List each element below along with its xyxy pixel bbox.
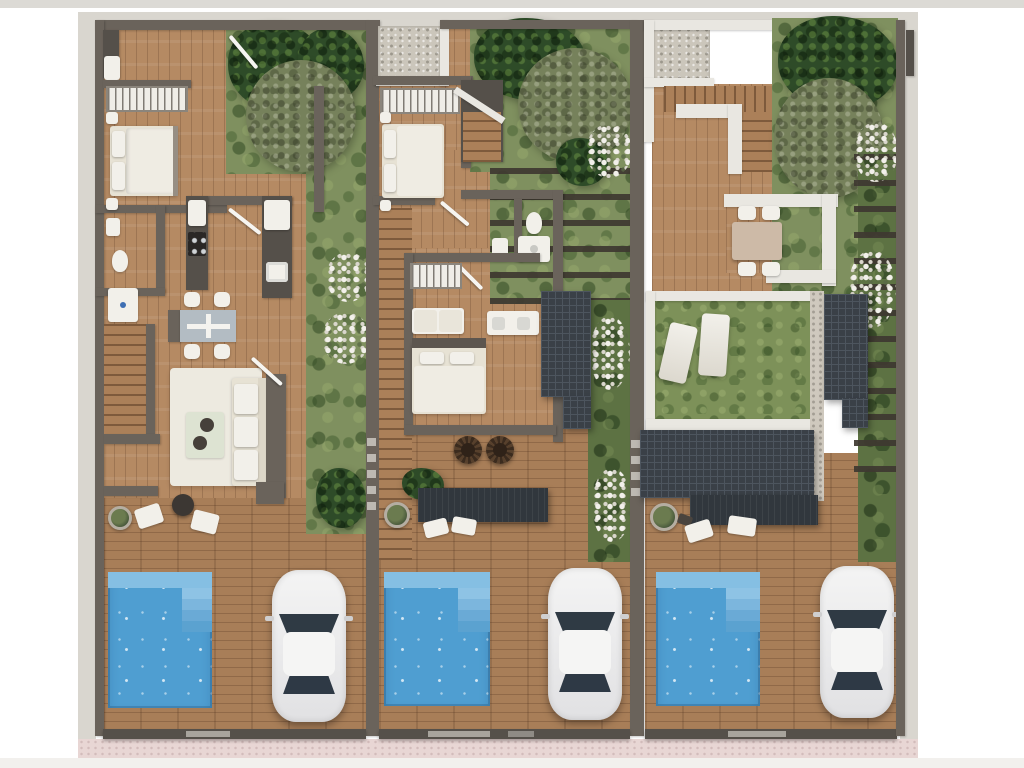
divider-wall-unit2-unit3 <box>630 20 644 736</box>
unit2-bed1-duvet <box>397 126 442 196</box>
unit1-sofa <box>232 378 268 486</box>
unit2-papasan-1-cushion <box>461 443 475 457</box>
unit1-bush <box>316 468 366 528</box>
unit2-flower-bush-a <box>586 124 632 178</box>
unit3-dining-chair-2 <box>762 206 780 220</box>
unit2-wall-bed1-top <box>373 76 473 85</box>
unit2-car-roof <box>559 630 611 674</box>
unit2-bench-cushion-1 <box>414 310 437 332</box>
unit1-bath-sink <box>106 218 120 236</box>
unit2-vanity-sink-2 <box>517 317 530 330</box>
unit1-flower-bush-a <box>326 252 370 302</box>
unit3-lawn-parapet-left <box>646 291 655 433</box>
unit1-wall-top <box>95 20 368 30</box>
unit2-pool-step-4 <box>458 621 490 632</box>
unit2-nightstand-1 <box>380 112 391 123</box>
unit3-sun-lounger-2 <box>698 313 730 377</box>
unit1-kitchen-counter-left <box>186 196 208 290</box>
unit1-fence-posts <box>367 434 376 510</box>
unit2-bed2-duvet <box>414 366 484 412</box>
unit1-nightstand-2 <box>106 198 118 210</box>
unit1-dining-chair-2 <box>214 292 230 307</box>
unit1-dining-chair-4 <box>214 344 230 359</box>
unit2-flower-bush-c <box>592 468 632 542</box>
unit1-car-rear-window <box>282 676 336 694</box>
unit2-pool-shelf <box>384 572 490 588</box>
unit1-gate-latch <box>186 731 230 737</box>
unit3-gate-latch <box>728 731 786 737</box>
unit1-stair-wall <box>146 324 155 436</box>
bottom-edge-strip <box>0 758 1024 768</box>
unit3-pool <box>656 572 760 706</box>
unit2-papasan-2-cushion <box>493 443 507 457</box>
unit1-sofa-cushion-3 <box>234 450 258 480</box>
unit1-flower-bush-b <box>322 312 370 364</box>
unit3-car-mirror-left <box>813 612 822 617</box>
unit3-roof-panel-right-step <box>842 398 868 428</box>
unit2-pool-step-3 <box>458 610 490 621</box>
unit3-pool-shelf <box>656 572 760 588</box>
unit2-bed1-pillow-1 <box>384 130 396 158</box>
unit1-olive-tree <box>246 60 356 172</box>
unit2-gravel-patch <box>378 26 442 80</box>
unit2-shower-drain <box>530 245 538 253</box>
unit1-pool-step-4 <box>182 621 212 632</box>
unit1-car-mirror-right <box>344 616 353 621</box>
unit1-pool <box>108 572 212 708</box>
unit1-toilet <box>112 250 128 272</box>
unit1-staircase <box>104 324 146 436</box>
unit2-gate-latch-2 <box>508 731 534 737</box>
unit1-car-roof <box>283 632 335 676</box>
frame-dark-tick <box>906 30 914 76</box>
top-edge-strip <box>0 0 1024 8</box>
unit1-stove <box>188 232 206 256</box>
unit2-papasan-chair-1 <box>454 436 482 464</box>
unit2-bench <box>412 308 464 334</box>
unit3-floor-cushion-2 <box>727 515 757 537</box>
unit1-dining-table-bar-h <box>187 324 230 329</box>
unit1-bed-pillow-1 <box>112 131 125 157</box>
unit1-nightstand-1 <box>106 112 118 124</box>
unit2-driveway-gate <box>379 729 630 739</box>
unit3-car-roof <box>831 628 883 672</box>
unit3-wall-top-light <box>644 20 780 30</box>
unit2-wardrobe-2 <box>410 263 462 289</box>
unit1-coffee-table-1 <box>200 418 214 432</box>
unit1-pool-step-1 <box>182 588 212 599</box>
unit1-island-top <box>264 200 290 230</box>
unit1-patio-table <box>172 494 194 516</box>
unit2-vanity <box>487 311 539 335</box>
unit1-kitchen-sink <box>266 262 288 282</box>
unit2-louver-roof-step <box>563 397 591 429</box>
unit1-sofa-cushion-1 <box>234 384 258 414</box>
unit1-pool-step-2 <box>182 599 212 610</box>
unit1-wall-stub-2 <box>104 486 158 496</box>
unit1-wall-bedroom-right <box>314 86 324 212</box>
unit1-entry-sink <box>104 56 120 80</box>
unit1-dining-rug <box>180 310 236 342</box>
unit1-dining-chair-3 <box>184 344 200 359</box>
divider-wall-unit1-unit2 <box>366 20 380 736</box>
unit2-bed-1 <box>382 124 444 198</box>
unit3-driveway-gate <box>645 729 897 739</box>
unit3-wall-right <box>896 20 905 736</box>
unit2-pool <box>384 572 490 706</box>
unit2-car <box>548 568 622 720</box>
unit2-car-mirror-left <box>541 614 550 619</box>
unit1-bed-duvet <box>126 128 174 194</box>
unit2-wall-bed2-bottom <box>404 425 556 435</box>
unit1-car-mirror-left <box>265 616 274 621</box>
unit1-driveway-gate <box>103 729 366 739</box>
unit1-bed-footboard <box>173 126 178 196</box>
unit1-planter <box>108 506 132 530</box>
unit2-nightstand-2 <box>380 200 391 211</box>
unit2-bed2-headboard <box>412 338 486 348</box>
unit2-fence-posts <box>631 436 640 496</box>
unit2-planter <box>384 502 410 528</box>
unit1-pool-shelf <box>108 572 212 588</box>
unit3-stairs-right-flight <box>742 112 774 172</box>
unit1-bed <box>110 126 178 196</box>
unit3-gravel-patch <box>648 26 710 80</box>
unit2-gate-latch <box>428 731 490 737</box>
unit3-dining-table <box>732 222 782 260</box>
unit1-counter-top <box>188 200 206 226</box>
unit2-bed-2 <box>412 342 486 414</box>
unit1-wall-stub-3 <box>256 482 284 504</box>
unit1-wall-stub-1 <box>168 310 180 342</box>
unit3-pool-step-2 <box>726 599 760 610</box>
unit2-wall-bed2-top <box>404 253 540 262</box>
unit2-wall-bath-top <box>461 190 563 199</box>
unit3-pool-step-4 <box>726 621 760 632</box>
unit3-car-rear-window <box>830 672 884 690</box>
unit1-wall-left <box>95 20 104 736</box>
unit3-dining-chair-4 <box>762 262 780 276</box>
unit3-dining-chair-3 <box>738 262 756 276</box>
unit3-flower-bush-a <box>854 122 898 182</box>
unit3-dining-chair-1 <box>738 206 756 220</box>
unit2-toilet <box>526 212 542 234</box>
unit2-pool-step-2 <box>458 599 490 610</box>
unit1-media-wall <box>266 374 286 498</box>
unit1-bed-pillow-2 <box>112 162 125 190</box>
unit2-flower-bush-b <box>590 316 630 390</box>
sidewalk <box>78 739 918 758</box>
unit2-wall-top <box>440 20 637 29</box>
unit1-pool-step-3 <box>182 610 212 621</box>
unit3-planter <box>650 503 678 531</box>
unit1-refrigerator <box>108 288 138 322</box>
unit2-vanity-sink-1 <box>492 317 505 330</box>
unit1-kitchen-counter-right <box>262 196 292 298</box>
unit2-car-rear-window <box>558 674 612 692</box>
unit2-louver-roof <box>541 291 591 397</box>
unit2-canopy <box>418 488 548 522</box>
unit3-stair-parapet-b <box>728 104 742 174</box>
unit1-wardrobe <box>106 86 188 112</box>
unit2-pool-step-1 <box>458 588 490 599</box>
floor-plan-render <box>0 0 1024 768</box>
unit3-pool-step-1 <box>726 588 760 599</box>
unit1-coffee-table-2 <box>193 436 207 450</box>
plot-frame-left <box>78 12 96 758</box>
unit2-bed2-pillow-1 <box>420 352 444 364</box>
unit2-wardrobe-1 <box>380 88 460 114</box>
unit2-car-mirror-right <box>620 614 629 619</box>
unit2-bed1-pillow-2 <box>384 164 396 192</box>
unit1-wall-bath-right <box>156 205 165 293</box>
unit3-car <box>820 566 894 718</box>
unit1-refrigerator-logo <box>120 302 126 308</box>
unit3-lawn-parapet-top <box>646 291 822 301</box>
unit1-stair-landing-wall <box>104 434 160 444</box>
unit1-coffee-table-mat <box>186 412 224 458</box>
unit3-roof-panel-right <box>824 294 868 400</box>
unit2-papasan-chair-2 <box>486 436 514 464</box>
unit3-roof-panel-main <box>640 430 814 498</box>
unit3-pool-step-3 <box>726 610 760 621</box>
unit2-bed2-pillow-2 <box>450 352 474 364</box>
unit1-dining-chair-1 <box>184 292 200 307</box>
unit2-bench-cushion-2 <box>439 310 462 332</box>
unit1-car <box>272 570 346 722</box>
unit1-sofa-cushion-2 <box>234 417 258 447</box>
